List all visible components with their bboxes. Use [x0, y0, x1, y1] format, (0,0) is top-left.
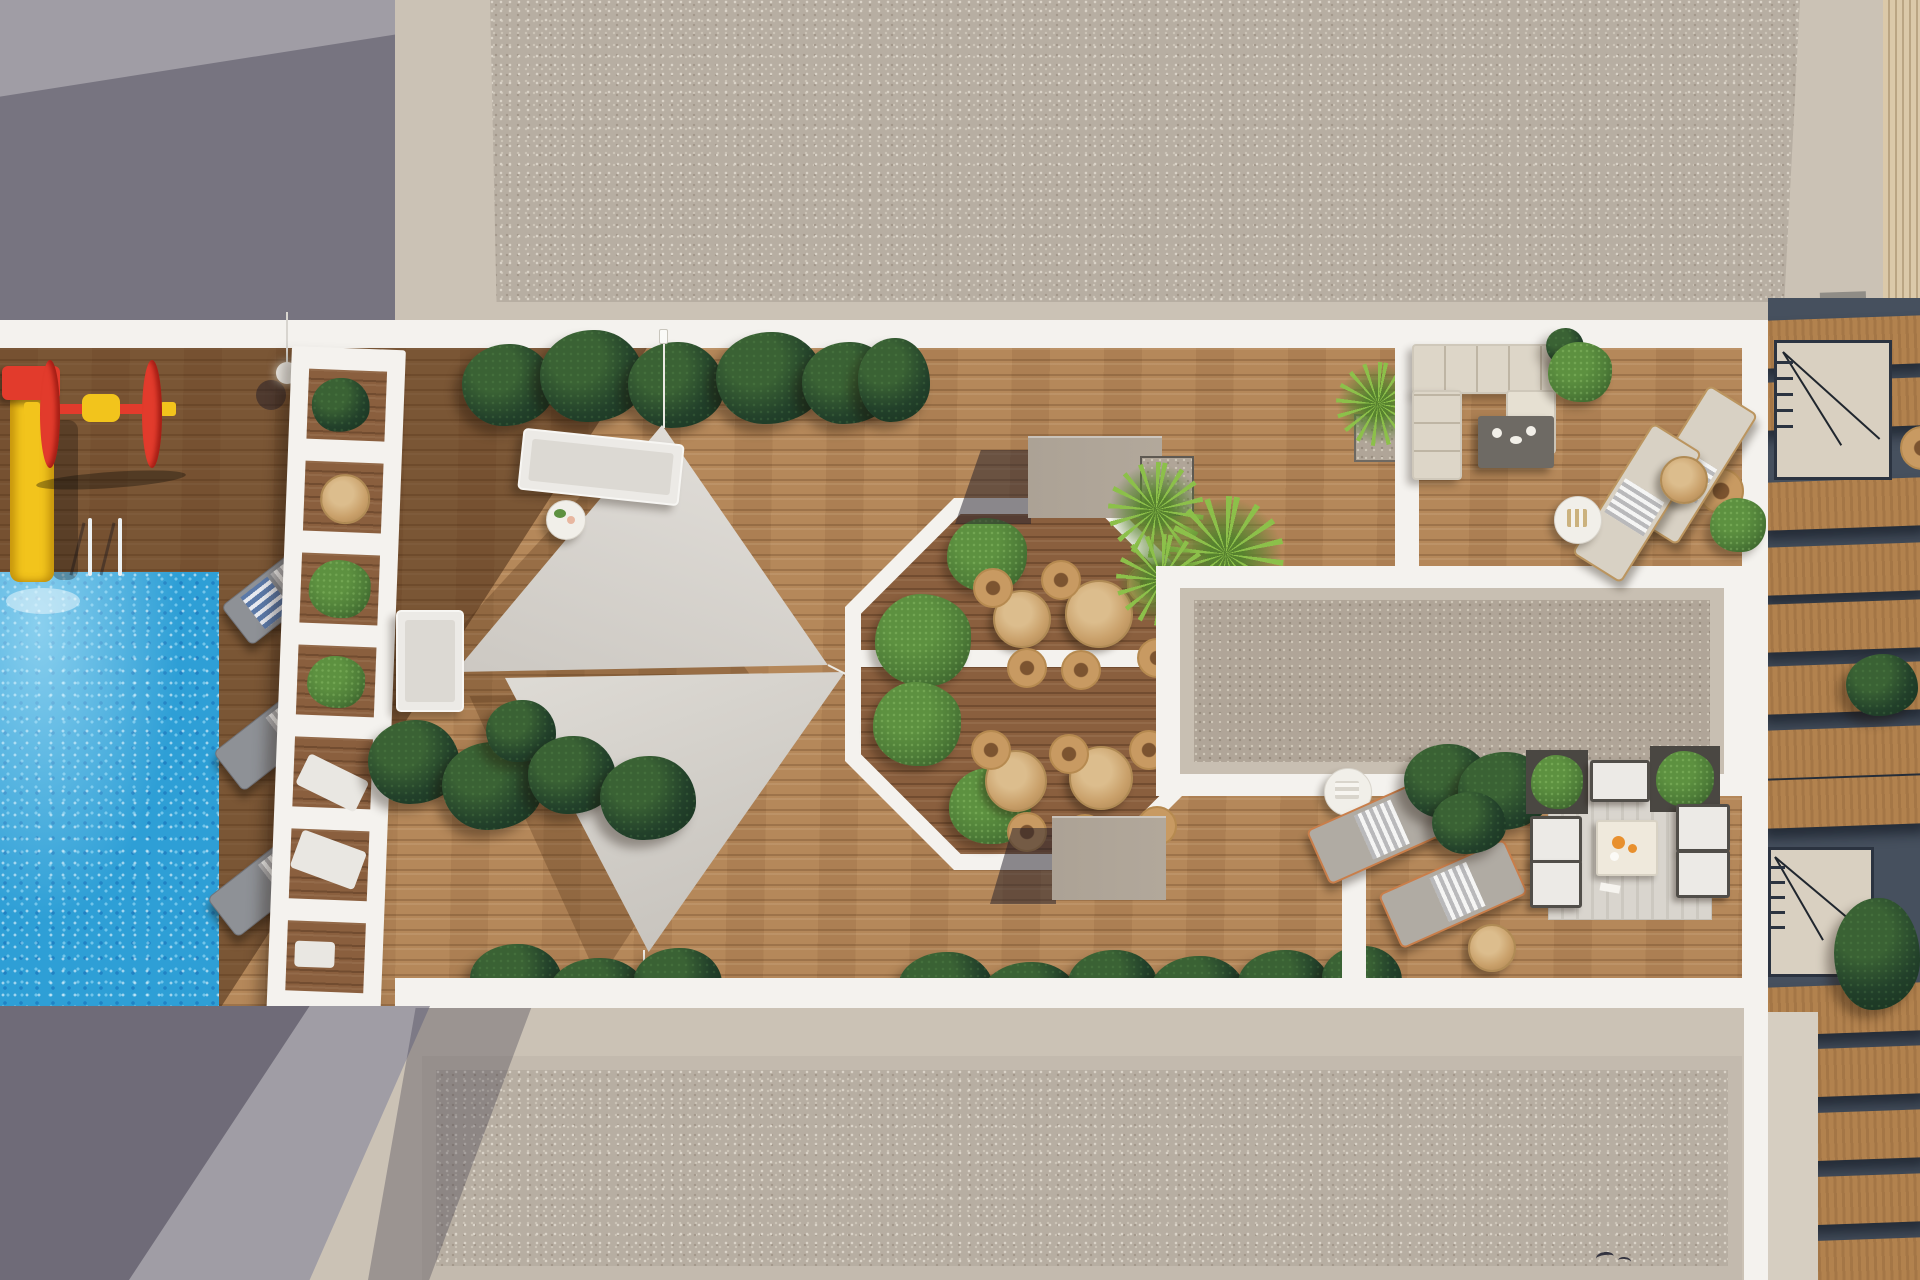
- lamp-pole: [286, 312, 288, 364]
- trellis-opening: [306, 369, 387, 442]
- trellis-plant: [311, 377, 371, 433]
- terrace-wall: [1768, 1012, 1818, 1280]
- trellis-lounger-glimpse: [289, 829, 367, 890]
- spinner-drum: [82, 394, 120, 422]
- trellis-chair-glimpse: [294, 941, 335, 969]
- plants-dark-top: [628, 342, 724, 428]
- trellis-opening: [285, 920, 366, 993]
- shrub-right: [1548, 342, 1612, 402]
- trellis-plant: [308, 559, 372, 619]
- lounger-towel: [1604, 478, 1664, 536]
- rooftop-render: [0, 0, 1920, 1280]
- plate: [1492, 428, 1502, 438]
- side-table-wood-right: [1660, 456, 1708, 504]
- shrub-right: [1710, 498, 1766, 552]
- fruit-plate: [1628, 844, 1637, 853]
- plants-dark-top: [858, 338, 930, 422]
- lounge-seat: [1530, 816, 1582, 864]
- parapet-bottom: [395, 978, 1744, 1008]
- spinner-disc-right: [142, 360, 162, 468]
- lamp-shadow: [256, 380, 286, 410]
- tray-table-right: [1554, 496, 1602, 544]
- drink-table: [546, 500, 586, 540]
- gravel-court: [1194, 600, 1710, 762]
- spinner-disc-left: [40, 360, 60, 468]
- terrace-plant: [1846, 654, 1918, 716]
- tray-items: [1335, 781, 1359, 799]
- gravel-roof-bottom: [422, 1056, 1742, 1280]
- trellis-plant: [306, 655, 366, 709]
- fruit-table: [1596, 820, 1658, 876]
- lounger-towel: [1354, 800, 1410, 860]
- pool-ladder-rail-b: [118, 518, 122, 576]
- octagon-chair: [1041, 560, 1081, 600]
- white-lounger-b: [396, 610, 464, 712]
- trellis-opening: [296, 644, 377, 717]
- palm-dark: [1432, 792, 1506, 854]
- sail-rope: [663, 338, 665, 428]
- fruit-plate: [1612, 836, 1625, 849]
- pergola-plank: [1768, 542, 1920, 596]
- coffee-table: [1478, 416, 1554, 468]
- trellis-opening: [303, 461, 384, 534]
- planter-box: [1650, 746, 1720, 812]
- pool-ladder-rail-a: [88, 518, 92, 576]
- louver-slats-topright: [1883, 0, 1920, 300]
- cup: [1610, 852, 1619, 861]
- lounge-seat: [1676, 850, 1730, 898]
- terrace-rattan-chair: [1900, 426, 1920, 470]
- pool: [0, 572, 219, 1006]
- stair-steps: [1771, 866, 1785, 932]
- lounge-seat: [1530, 860, 1582, 908]
- octagon-chair: [971, 730, 1011, 770]
- planter-shrub: [1656, 751, 1714, 807]
- octagon-chair: [973, 568, 1013, 608]
- plate: [1526, 426, 1536, 436]
- octagon-shrub: [873, 682, 961, 766]
- spinner-knob-left: [24, 402, 40, 416]
- lounger-pad: [528, 439, 674, 496]
- sofa-back: [1412, 344, 1558, 394]
- gravel-roof-top: [490, 0, 1800, 302]
- pergola-plank: [1768, 599, 1920, 653]
- pergola-plank: [1768, 477, 1920, 531]
- storage-cube-bottom: [1052, 816, 1166, 900]
- stair-steps: [1777, 361, 1793, 431]
- drink-glass: [567, 516, 575, 524]
- octagon-chair: [1049, 734, 1089, 774]
- stair-landing-top: [1774, 340, 1892, 480]
- wood-pouf: [1468, 924, 1516, 972]
- plants-dark-mid: [600, 756, 696, 840]
- plate: [1510, 436, 1522, 444]
- spinner-knob-right: [160, 402, 176, 416]
- trellis-lounger-glimpse: [295, 753, 369, 813]
- private-terraces: [1768, 298, 1920, 1280]
- drink-leaves: [554, 509, 566, 518]
- octagon-chair: [1007, 648, 1047, 688]
- terrace-plant: [1834, 898, 1920, 1010]
- octagon-shrub: [875, 594, 971, 686]
- pool-splash: [6, 588, 80, 614]
- trellis-opening: [289, 828, 370, 901]
- octagon-chair: [1061, 650, 1101, 690]
- trellis-opening: [299, 553, 380, 626]
- pergola-plank: [1768, 725, 1920, 779]
- trellis-round-table: [319, 473, 371, 525]
- lounger-pad: [405, 620, 455, 702]
- lounge-seat: [1676, 804, 1730, 852]
- sail-pole: [659, 329, 668, 344]
- walkway-vertical-right: [1742, 322, 1768, 1280]
- planter-box: [1526, 750, 1588, 814]
- lounge-seat: [1590, 760, 1650, 802]
- planter-shrub: [1531, 755, 1583, 809]
- lounger-towel: [1430, 862, 1486, 922]
- sofa-side: [1412, 390, 1462, 480]
- tray-items: [1567, 509, 1587, 527]
- pergola-plank: [1768, 775, 1920, 829]
- trellis-opening: [292, 736, 373, 809]
